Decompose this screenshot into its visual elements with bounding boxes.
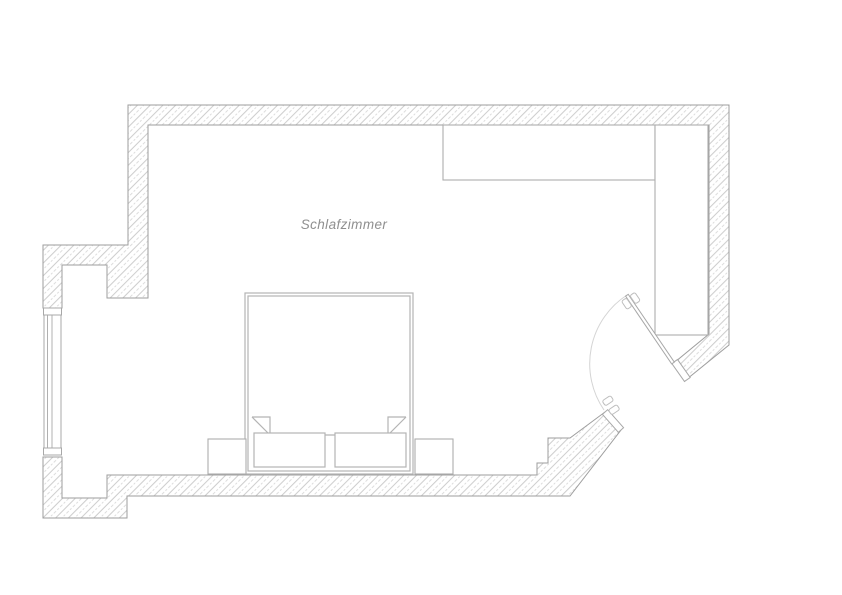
window-opening [43,308,62,455]
wardrobe-right [655,125,708,335]
floor-plan-page: Schlafzimmer [0,0,842,595]
window-reveal-bottom [44,448,62,455]
bed [245,293,413,474]
pillow-left [254,433,325,467]
room-label: Schlafzimmer [301,217,388,232]
nightstand-right [415,439,453,474]
window-reveal-top [44,308,62,315]
door-frame-symbol [608,404,620,415]
wardrobes [443,125,708,335]
nightstand-left [208,439,246,474]
door-swing-arc [590,295,627,410]
window [43,308,62,455]
wardrobe-top [443,125,655,180]
floor-plan-canvas: Schlafzimmer [0,0,842,595]
pillow-right [335,433,406,467]
door-frame-symbol [602,395,614,406]
window-glass-pane [48,315,53,448]
